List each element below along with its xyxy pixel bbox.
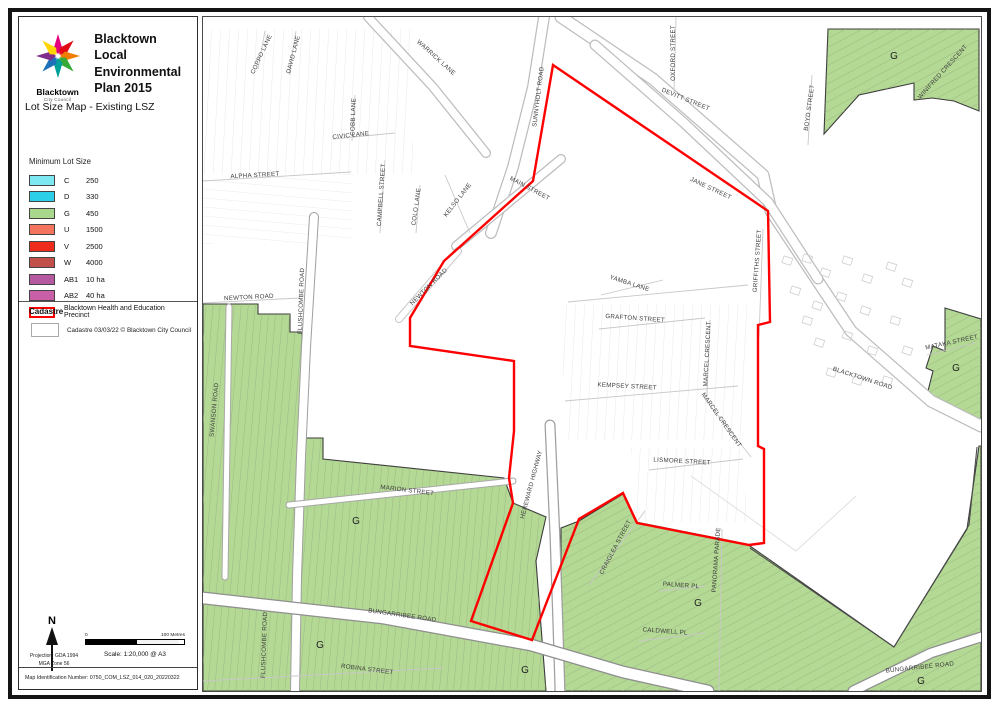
- map-id-text: Map Identification Number: 0750_COM_LSZ_…: [25, 675, 197, 681]
- zone-letter: G: [917, 676, 925, 687]
- map-drawing: COPPO LANE DAVID LANE WARRICK LANE COBB …: [203, 17, 981, 691]
- map-title: Blacktown Local Environmental Plan 2015: [94, 31, 189, 102]
- legend-code: AB2: [64, 291, 86, 300]
- cadastre-row: Cadastre 03/03/22 © Blacktown City Counc…: [31, 323, 191, 337]
- legend-code: U: [64, 225, 86, 234]
- panel-header: Blacktown City Council Blacktown Local E…: [29, 31, 189, 102]
- legend: Minimum Lot Size C 250 D 330 G 450 U 150…: [29, 157, 189, 321]
- scale-text: Scale: 1:20,000 @ A3: [85, 651, 185, 658]
- legend-row: W 4000: [29, 255, 189, 272]
- street-label: COBB LANE: [349, 98, 357, 136]
- scalebar-bar: [85, 639, 185, 645]
- legend-row: C 250: [29, 172, 189, 189]
- cadastre-swatch: [31, 323, 59, 337]
- zone-letter: G: [521, 665, 529, 676]
- legend-code: C: [64, 176, 86, 185]
- projection-note: Projection: GDA 1994 MGA Zone 56: [21, 653, 87, 668]
- legend-code: V: [64, 242, 86, 251]
- legend-swatch-ab1: [29, 274, 55, 285]
- legend-code: AB1: [64, 275, 86, 284]
- street-label: OXFORD STREET: [670, 25, 677, 81]
- zone-letter: G: [316, 640, 324, 651]
- legend-code: D: [64, 192, 86, 201]
- divider: [19, 301, 197, 302]
- legend-row: AB1 10 ha: [29, 271, 189, 288]
- legend-value: 2500: [86, 242, 103, 251]
- scalebar-zero: 0: [85, 633, 88, 638]
- legend-row: G 450: [29, 205, 189, 222]
- map-canvas: COPPO LANE DAVID LANE WARRICK LANE COBB …: [202, 16, 982, 692]
- logo-org-name: Blacktown: [29, 87, 86, 97]
- legend-value: 1500: [86, 225, 103, 234]
- zone-letter: G: [694, 598, 702, 609]
- zone-letter: G: [352, 516, 360, 527]
- legend-value: 10 ha: [86, 275, 105, 284]
- cadastre-label: Cadastre 03/03/22 © Blacktown City Counc…: [67, 327, 191, 334]
- legend-code: G: [64, 209, 86, 218]
- legend-swatch-u: [29, 224, 55, 235]
- council-logo-star-icon: [32, 31, 84, 81]
- parcel-texture: [203, 29, 413, 174]
- north-label: N: [39, 615, 65, 627]
- map-subtitle: Lot Size Map - Existing LSZ: [25, 101, 155, 113]
- legend-value: 40 ha: [86, 291, 105, 300]
- legend-heading: Minimum Lot Size: [29, 157, 189, 166]
- parcel-texture: [203, 174, 353, 244]
- legend-swatch-d: [29, 191, 55, 202]
- legend-row: V 2500: [29, 238, 189, 255]
- legend-row: D 330: [29, 189, 189, 206]
- legend-row: U 1500: [29, 222, 189, 239]
- scalebar-max: 100 Metres: [161, 633, 185, 638]
- zone-letter: G: [890, 51, 898, 62]
- legend-swatch-c: [29, 175, 55, 186]
- legend-value: 330: [86, 192, 99, 201]
- title-legend-panel: Blacktown City Council Blacktown Local E…: [18, 16, 198, 690]
- zone-letter: G: [952, 363, 960, 374]
- legend-value: 4000: [86, 258, 103, 267]
- map-sheet: Blacktown City Council Blacktown Local E…: [0, 0, 999, 707]
- projection-line1: Projection: GDA 1994: [21, 653, 87, 661]
- legend-precinct-label: Blacktown Health and Education Precinct: [64, 305, 189, 319]
- cadastre-heading: Cadastre: [29, 307, 63, 316]
- council-logo: Blacktown City Council: [29, 31, 86, 102]
- legend-value: 450: [86, 209, 99, 218]
- legend-value: 250: [86, 176, 99, 185]
- legend-swatch-v: [29, 241, 55, 252]
- legend-swatch-g: [29, 208, 55, 219]
- legend-code: W: [64, 258, 86, 267]
- legend-swatch-w: [29, 257, 55, 268]
- scalebar: 0 100 Metres Scale: 1:20,000 @ A3: [85, 633, 185, 658]
- legend-swatch-ab2: [29, 290, 55, 301]
- map-id-strip: Map Identification Number: 0750_COM_LSZ_…: [19, 667, 197, 690]
